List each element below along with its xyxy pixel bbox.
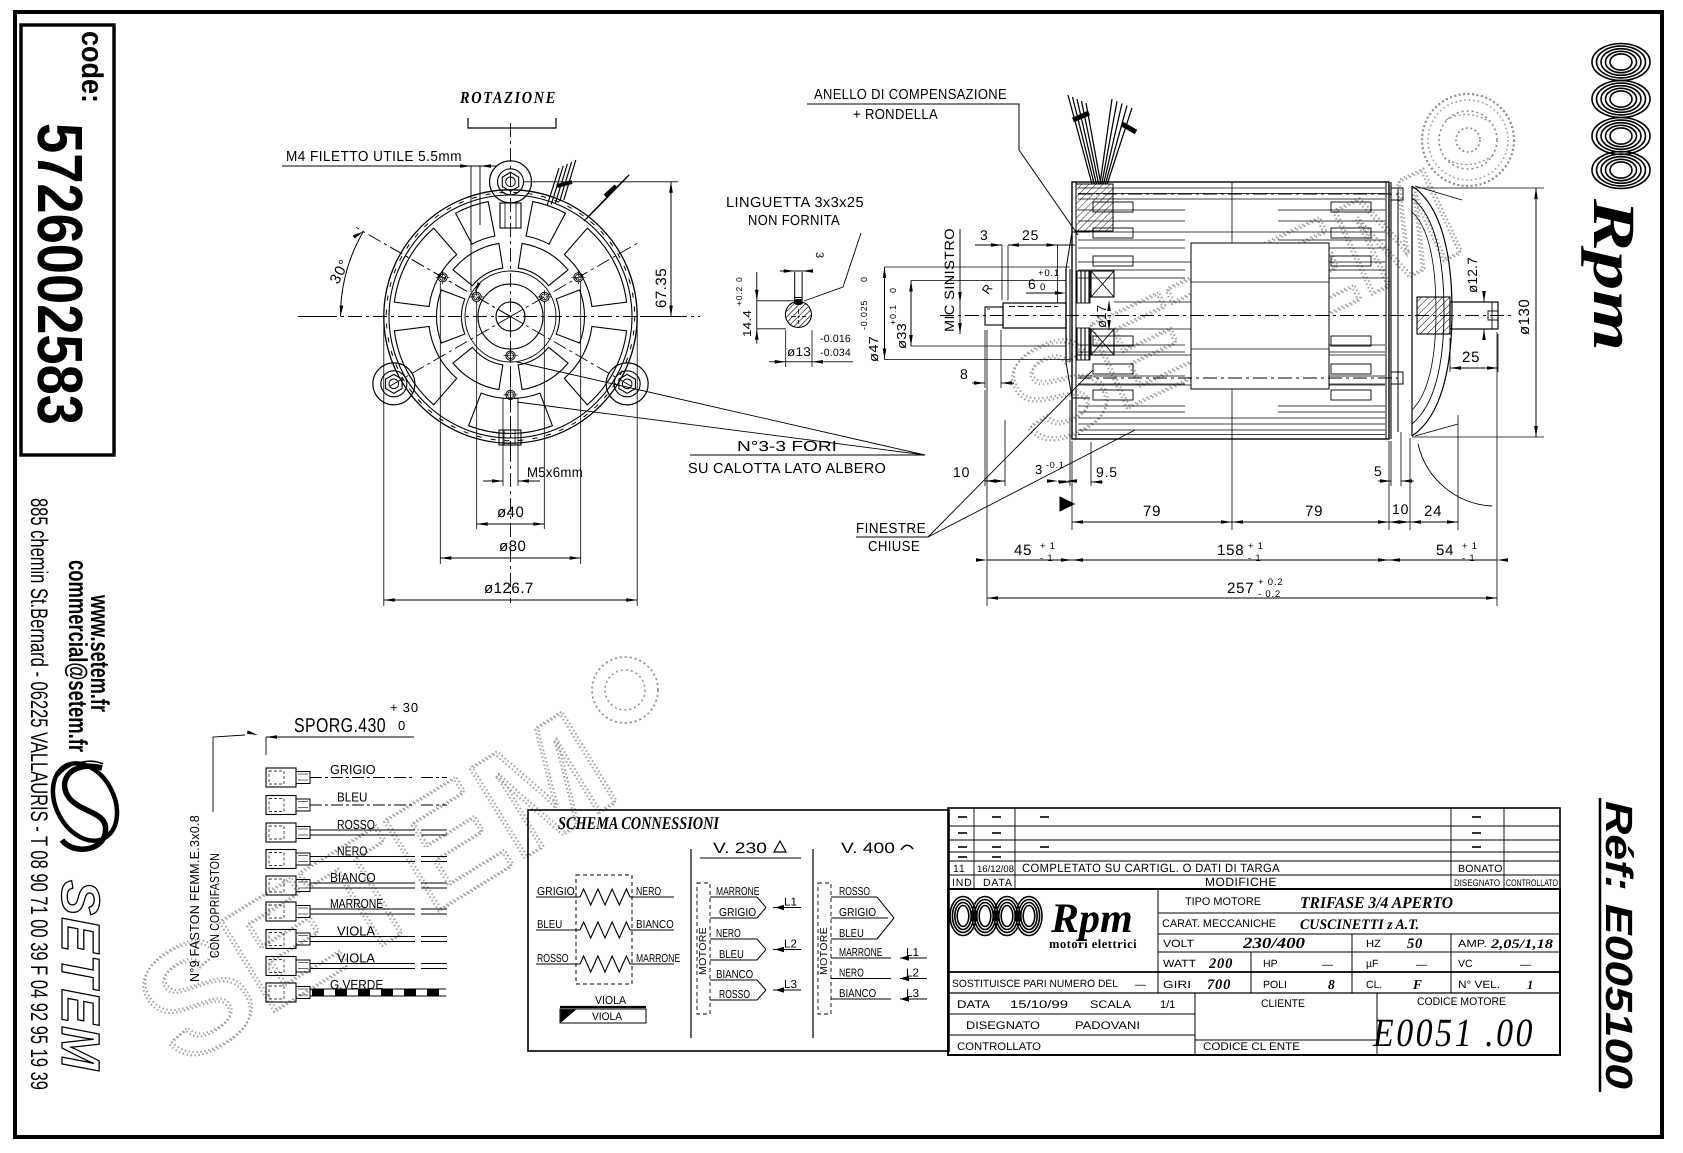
svg-text:8: 8 <box>960 366 969 382</box>
svg-text:SOSTITUISCE PARI NUMERO DEL: SOSTITUISCE PARI NUMERO DEL <box>952 978 1118 990</box>
svg-text:DATA: DATA <box>957 999 991 1011</box>
svg-text:+ RONDELLA: + RONDELLA <box>853 107 938 123</box>
svg-text:ROSSO: ROSSO <box>537 953 569 965</box>
svg-text:- 1: - 1 <box>1462 553 1476 564</box>
svg-text:ROSSO: ROSSO <box>719 989 750 1001</box>
svg-text:- 1: - 1 <box>1248 553 1262 564</box>
svg-text:NERO: NERO <box>337 844 367 859</box>
svg-text:N° VEL.: N° VEL. <box>1458 979 1500 991</box>
svg-text:code:: code: <box>75 31 108 103</box>
svg-text:CONTROLLATO: CONTROLLATO <box>957 1041 1041 1053</box>
svg-text:Rpm: Rpm <box>1050 896 1133 942</box>
svg-text:CUSCINETTI z A.T.: CUSCINETTI z A.T. <box>1300 917 1419 933</box>
svg-text:L1: L1 <box>784 897 797 909</box>
svg-text:VIOLA: VIOLA <box>595 995 626 1007</box>
svg-text:TIPO MOTORE: TIPO MOTORE <box>1185 896 1261 908</box>
svg-text:3: 3 <box>1035 462 1043 477</box>
svg-text:SPORG.430: SPORG.430 <box>294 715 386 737</box>
svg-text:M4 FILETTO UTILE 5.5mm: M4 FILETTO UTILE 5.5mm <box>286 149 462 165</box>
svg-text:1/1: 1/1 <box>1160 999 1175 1011</box>
svg-text:11: 11 <box>953 863 966 875</box>
svg-text:MODIFICHE: MODIFICHE <box>1205 875 1277 889</box>
svg-text:CARAT. MECCANICHE: CARAT. MECCANICHE <box>1162 918 1276 930</box>
svg-text:CONTROLLATO: CONTROLLATO <box>1506 878 1558 889</box>
svg-text:ø33: ø33 <box>894 323 909 349</box>
svg-text:MARRONE: MARRONE <box>330 896 383 911</box>
svg-text:GRIGIO: GRIGIO <box>839 907 876 919</box>
svg-text:MOTORE: MOTORE <box>819 927 830 975</box>
svg-text:BIANCO: BIANCO <box>330 870 376 885</box>
svg-text:V. 230: V. 230 <box>713 840 767 857</box>
svg-text:6: 6 <box>1028 276 1037 292</box>
svg-text:CODICE CL ENTE: CODICE CL ENTE <box>1203 1041 1300 1053</box>
svg-text:230/400: 230/400 <box>1242 935 1306 952</box>
svg-text:SU CALOTTA LATO ALBERO: SU CALOTTA LATO ALBERO <box>688 461 886 477</box>
svg-text:GRIGIO: GRIGIO <box>719 907 756 919</box>
svg-text:VIOLA: VIOLA <box>337 951 375 966</box>
svg-text:L3: L3 <box>906 988 919 1000</box>
svg-text:10: 10 <box>953 464 970 480</box>
svg-text:158: 158 <box>1217 542 1244 559</box>
svg-text:GIRI: GIRI <box>1163 979 1191 991</box>
svg-text:DISEGNATO: DISEGNATO <box>1454 878 1500 889</box>
svg-text:AMP.: AMP. <box>1458 938 1487 950</box>
svg-text:POLI: POLI <box>1263 979 1287 991</box>
svg-text:WATT: WATT <box>1163 958 1197 970</box>
svg-text:24: 24 <box>1424 503 1442 520</box>
svg-text:0: 0 <box>1040 282 1046 293</box>
svg-text:ø80: ø80 <box>499 538 526 555</box>
svg-text:MARRONE: MARRONE <box>839 947 883 959</box>
svg-text:BLEU: BLEU <box>839 928 864 940</box>
svg-text:ø130: ø130 <box>1516 299 1533 335</box>
svg-text:9.5: 9.5 <box>1096 464 1118 480</box>
svg-text:commercial@setem.fr: commercial@setem.fr <box>63 560 93 752</box>
svg-text:54: 54 <box>1436 542 1454 559</box>
svg-text:SCALA: SCALA <box>1090 999 1132 1011</box>
svg-text:NON FORNITA: NON FORNITA <box>748 213 840 229</box>
svg-text:-0.025: -0.025 <box>859 300 869 330</box>
svg-text:SCHEMA CONNESSIONI: SCHEMA CONNESSIONI <box>558 813 720 833</box>
svg-text:ø17: ø17 <box>1094 305 1109 328</box>
svg-text:CL.: CL. <box>1366 979 1382 991</box>
svg-text:—: — <box>1135 979 1147 991</box>
svg-text:15/10/99: 15/10/99 <box>1010 999 1068 1011</box>
svg-text:ROSSO: ROSSO <box>337 817 375 832</box>
svg-text:885 chemin St.Bernard - 0622: 885 chemin St.Bernard - 06225 VALLAURIS … <box>25 498 52 1090</box>
svg-text:VC: VC <box>1458 958 1473 970</box>
svg-text:5726002583: 5726002583 <box>24 123 96 425</box>
svg-text:Réf: E005100: Réf: E005100 <box>1597 801 1639 1089</box>
svg-text:VIOLA: VIOLA <box>337 924 375 939</box>
svg-text:CODICE MOTORE: CODICE MOTORE <box>1417 996 1506 1008</box>
svg-text:E0051 .00: E0051 .00 <box>1372 1010 1535 1055</box>
svg-text:G.VERDE: G.VERDE <box>330 977 383 992</box>
svg-text:—: — <box>1322 959 1334 971</box>
svg-text:-0.016: -0.016 <box>820 333 851 345</box>
svg-text:50: 50 <box>1407 936 1423 952</box>
svg-text:HP: HP <box>1263 958 1278 970</box>
svg-text:L1: L1 <box>906 947 919 959</box>
svg-text:ROSSO: ROSSO <box>839 886 870 898</box>
svg-text:BIANCO: BIANCO <box>636 919 674 931</box>
svg-text:-0.034: -0.034 <box>820 347 851 359</box>
svg-text:DATA: DATA <box>983 877 1013 889</box>
svg-text:VIOLA: VIOLA <box>592 1011 623 1023</box>
svg-text:+0.2: +0.2 <box>734 286 744 306</box>
svg-text:NERO: NERO <box>716 928 741 940</box>
svg-text:FINESTRE: FINESTRE <box>856 521 926 537</box>
svg-text:257: 257 <box>1227 580 1254 597</box>
svg-text:BONATO: BONATO <box>1458 863 1503 875</box>
svg-text:+ 0.2: + 0.2 <box>1258 577 1283 588</box>
svg-text:3: 3 <box>813 252 825 259</box>
svg-text:MOTORE: MOTORE <box>698 927 709 975</box>
svg-text:MARRONE: MARRONE <box>716 886 760 898</box>
svg-text:COMPLETATO SU CARTIGL. O DATI: COMPLETATO SU CARTIGL. O DATI DI TARGA <box>1022 861 1280 875</box>
svg-text:- 0.2: - 0.2 <box>1258 589 1281 600</box>
svg-text:8: 8 <box>1328 977 1336 992</box>
svg-text:L3: L3 <box>784 979 797 991</box>
svg-text:700: 700 <box>1207 977 1231 993</box>
svg-text:NERO: NERO <box>636 886 661 898</box>
svg-text:14.4: 14.4 <box>742 310 754 337</box>
svg-text:BLEU: BLEU <box>337 790 367 805</box>
svg-text:L2: L2 <box>906 968 919 980</box>
svg-text:0: 0 <box>398 718 406 733</box>
svg-text:—: — <box>1416 959 1428 971</box>
svg-text:79: 79 <box>1305 503 1323 520</box>
svg-text:V. 400: V. 400 <box>841 840 895 857</box>
svg-text:+ 30: + 30 <box>390 700 419 715</box>
svg-text:+0.1: +0.1 <box>1038 268 1060 279</box>
svg-text:DISEGNATO: DISEGNATO <box>966 1020 1041 1032</box>
svg-text:CHIUSE: CHIUSE <box>868 539 920 555</box>
svg-text:0: 0 <box>734 276 744 282</box>
svg-text:3: 3 <box>980 227 989 243</box>
svg-text:SETEM: SETEM <box>50 880 110 1072</box>
svg-text:MIC SINISTRO: MIC SINISTRO <box>942 228 957 332</box>
svg-text:M5x6mm: M5x6mm <box>527 464 583 480</box>
svg-text:L2: L2 <box>784 939 797 951</box>
svg-text:0: 0 <box>888 287 898 293</box>
svg-text:10: 10 <box>1392 501 1409 517</box>
svg-text:+ 1: + 1 <box>1462 541 1478 552</box>
svg-text:25: 25 <box>1022 227 1039 243</box>
svg-text:N°9 FASTON FEMM.E.3x0.8: N°9 FASTON FEMM.E.3x0.8 <box>187 815 202 982</box>
svg-text:+ 1: + 1 <box>1040 541 1056 552</box>
svg-text:2,05/1,18: 2,05/1,18 <box>1490 936 1554 951</box>
svg-text:BLEU: BLEU <box>719 949 744 961</box>
svg-text:LINGUETTA 3x3x25: LINGUETTA 3x3x25 <box>726 195 864 211</box>
svg-text:-0.1: -0.1 <box>1046 460 1065 470</box>
svg-text:PADOVANI: PADOVANI <box>1075 1020 1140 1032</box>
svg-text:GRIGIO: GRIGIO <box>537 886 575 898</box>
svg-text:79: 79 <box>1143 503 1161 520</box>
svg-text:CON COPRIFASTON: CON COPRIFASTON <box>207 853 222 958</box>
svg-text:ø47: ø47 <box>866 336 881 362</box>
svg-text:200: 200 <box>1208 956 1233 972</box>
svg-text:67.35: 67.35 <box>653 268 670 308</box>
svg-text:motori elettrici: motori elettrici <box>1049 937 1137 951</box>
svg-text:—: — <box>1520 959 1532 971</box>
svg-text:ANELLO DI COMPENSAZIONE: ANELLO DI COMPENSAZIONE <box>814 87 1007 103</box>
svg-text:BLEU: BLEU <box>537 919 562 931</box>
svg-text:0: 0 <box>859 276 869 282</box>
svg-text:MARRONE: MARRONE <box>636 953 680 965</box>
svg-text:- 1: - 1 <box>1040 553 1054 564</box>
svg-text:ø126.7: ø126.7 <box>484 580 534 597</box>
svg-text:CLIENTE: CLIENTE <box>1261 998 1305 1010</box>
svg-text:F: F <box>1412 977 1423 992</box>
svg-text:µF: µF <box>1366 958 1378 970</box>
svg-text:+ 1: + 1 <box>1248 541 1264 552</box>
svg-text:1: 1 <box>1527 978 1534 992</box>
svg-text:45: 45 <box>1014 542 1032 559</box>
svg-text:ROTAZIONE: ROTAZIONE <box>459 88 557 107</box>
svg-text:IND: IND <box>952 877 972 889</box>
svg-text:BIANCO: BIANCO <box>716 969 753 981</box>
svg-text:16/12/08: 16/12/08 <box>977 864 1014 875</box>
svg-text:NERO: NERO <box>839 968 864 980</box>
svg-text:BIANCO: BIANCO <box>839 988 876 1000</box>
svg-text:GRIGIO: GRIGIO <box>330 762 376 777</box>
svg-text:Rpm: Rpm <box>1581 198 1647 351</box>
svg-text:VOLT: VOLT <box>1163 938 1195 950</box>
svg-text:ø40: ø40 <box>497 504 524 521</box>
svg-text:ø13: ø13 <box>787 345 811 359</box>
svg-text:25: 25 <box>1462 349 1480 366</box>
svg-text:+0.1: +0.1 <box>888 304 898 325</box>
svg-text:ø12.7: ø12.7 <box>1465 257 1480 293</box>
svg-text:HZ: HZ <box>1366 938 1382 950</box>
svg-text:TRIFASE 3/4 APERTO: TRIFASE 3/4 APERTO <box>1300 893 1453 912</box>
svg-text:5: 5 <box>1374 463 1383 479</box>
